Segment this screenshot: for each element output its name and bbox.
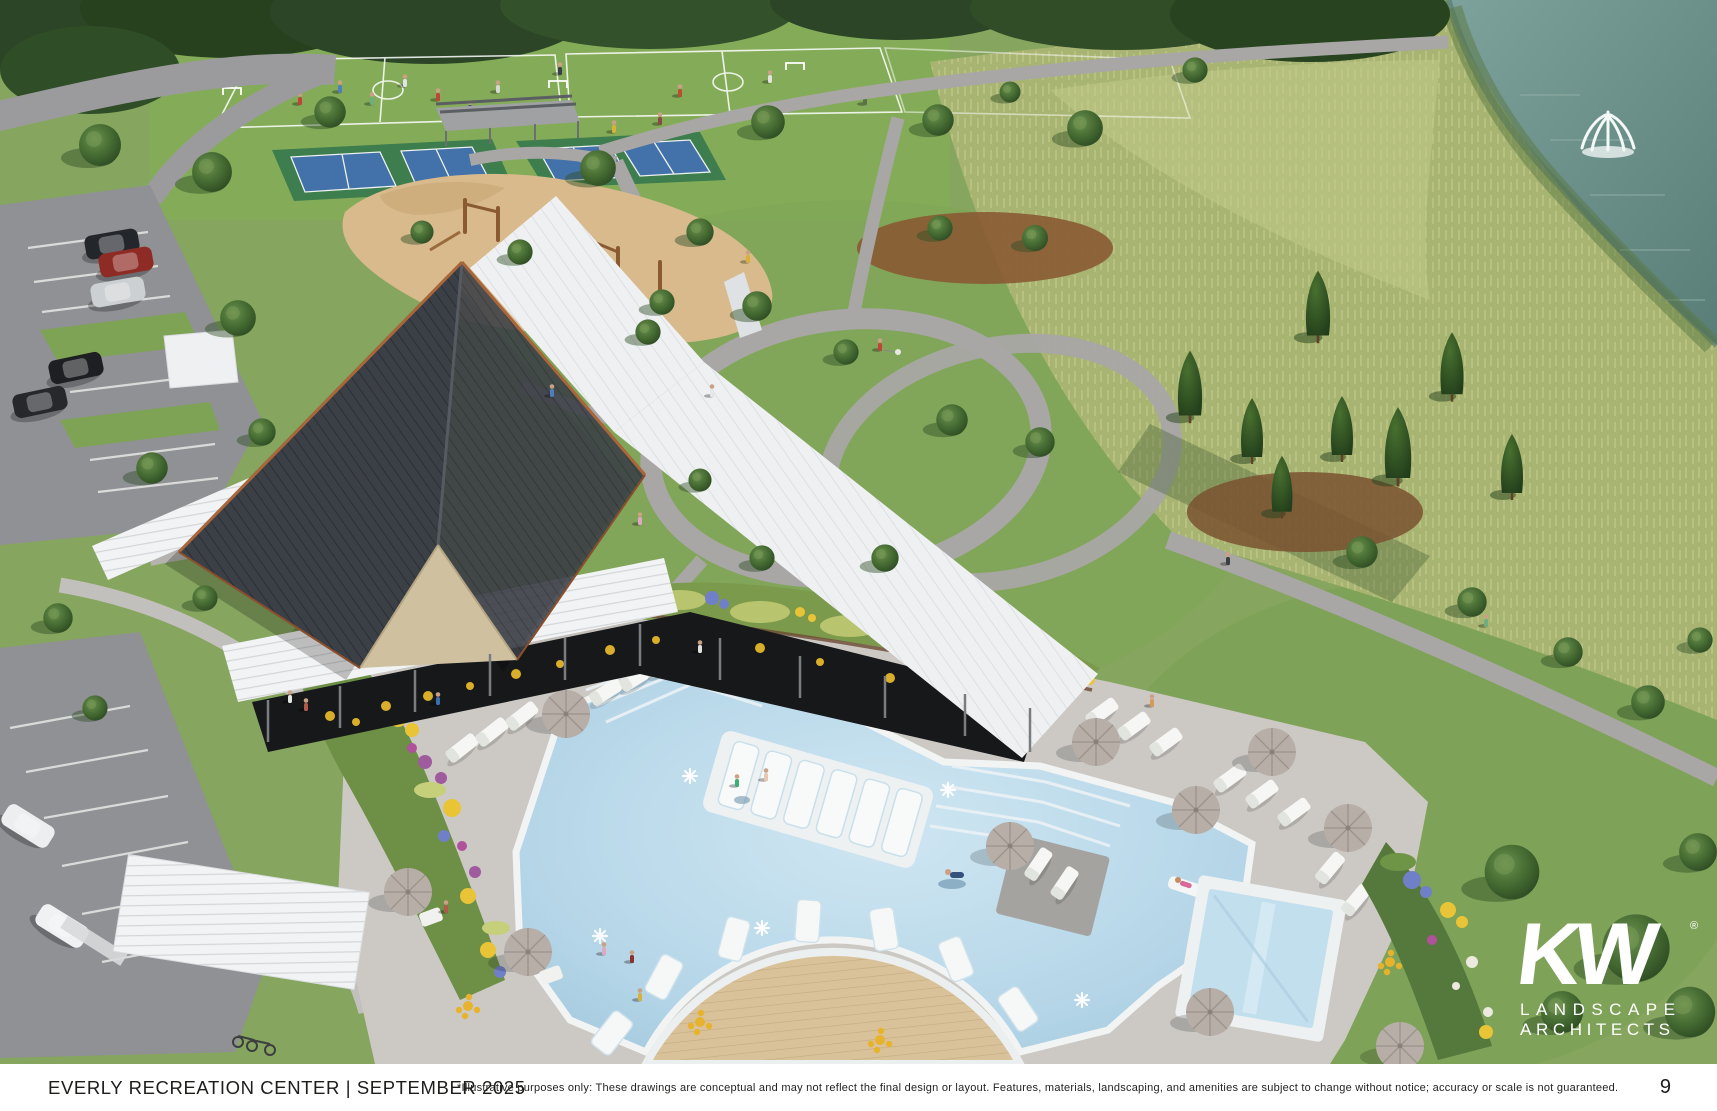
- logo-word-architects: ARCHITECTS: [1520, 1020, 1675, 1040]
- kw-logo-mark: KW: [1512, 906, 1656, 1003]
- registered-trademark-symbol: ®: [1690, 920, 1698, 932]
- aerial-rendering: [0, 0, 1717, 1064]
- disclaimer-text: *Illustrative purposes only: These drawi…: [457, 1064, 1618, 1111]
- logo-word-landscape: LANDSCAPE: [1520, 1000, 1681, 1020]
- kw-landscape-architects-logo: KW ® LANDSCAPE ARCHITECTS: [1512, 912, 1717, 1050]
- scene-svg: [0, 0, 1717, 1064]
- presentation-page: KW ® LANDSCAPE ARCHITECTS EVERLY RECREAT…: [0, 0, 1717, 1111]
- mulch-bed: [857, 212, 1113, 284]
- page-number: 9: [1660, 1064, 1671, 1111]
- footer-bar: EVERLY RECREATION CENTER | SEPTEMBER 202…: [0, 1064, 1717, 1111]
- page-title: EVERLY RECREATION CENTER | SEPTEMBER 202…: [48, 1064, 526, 1111]
